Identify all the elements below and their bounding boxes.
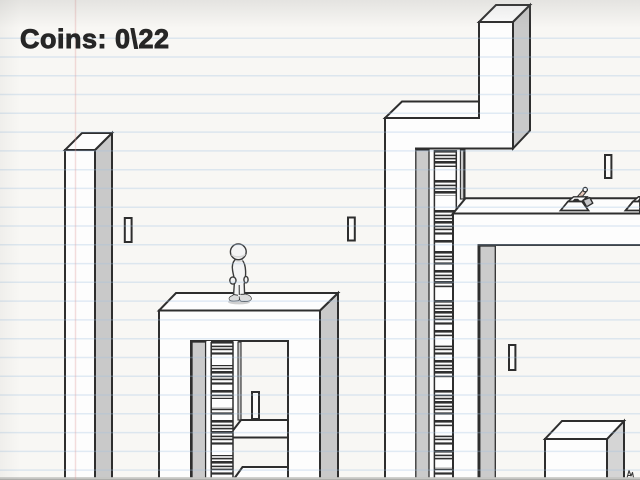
svg-text:Coins: 0\22: Coins: 0\22 [20,24,170,54]
